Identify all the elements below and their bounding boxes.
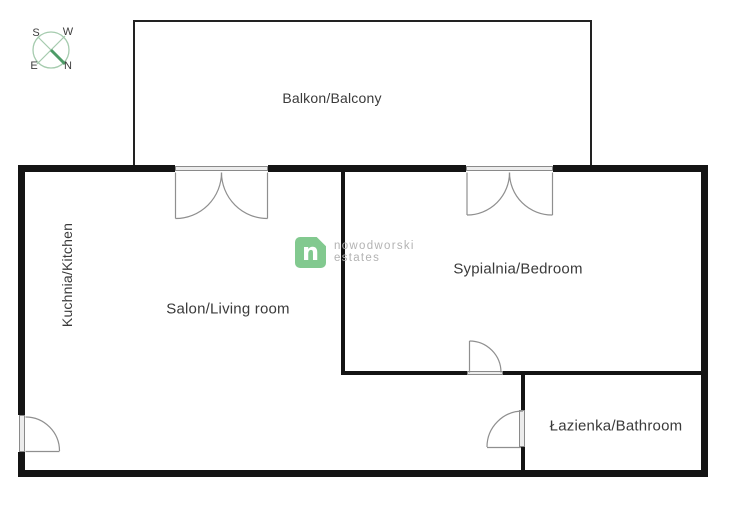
logo-glyph: n (302, 240, 319, 264)
bathroom-door-arc (487, 411, 523, 447)
room-label-balcony: Balkon/Balcony (282, 90, 381, 106)
watermark-line1: nowodworski (334, 240, 415, 252)
bedroom-door-arc (470, 341, 502, 373)
entry-door-arc (26, 417, 60, 451)
room-label-kitchen: Kuchnia/Kitchen (59, 223, 75, 327)
watermark: n nowodworski estates (295, 237, 415, 268)
balcony-door-bedroom-left-arc (467, 173, 510, 216)
balcony-door-living-left-arc (176, 173, 222, 219)
room-label-bedroom: Sypialnia/Bedroom (453, 261, 582, 278)
watermark-line2: estates (334, 252, 415, 264)
room-label-bathroom: Łazienka/Bathroom (550, 418, 683, 435)
balcony-door-living-right-arc (222, 173, 268, 219)
room-label-living-room: Salon/Living room (166, 301, 289, 318)
balcony-door-bedroom-right-arc (510, 173, 553, 216)
nowodworski-logo-icon: n (295, 237, 326, 268)
floor-plan: S W E N (0, 0, 731, 509)
watermark-text: nowodworski estates (334, 240, 415, 264)
